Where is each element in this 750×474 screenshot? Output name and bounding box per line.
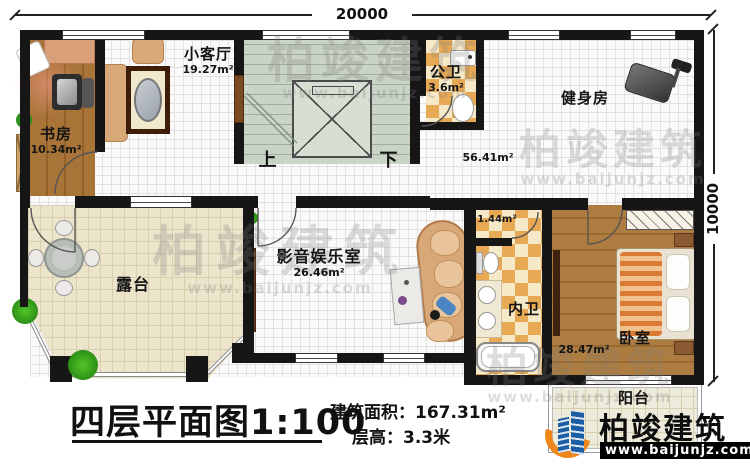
bed-pillow <box>666 254 690 290</box>
wash-basin <box>478 286 496 304</box>
room-area: 1.44m² <box>474 214 520 226</box>
stair-direction: 下 <box>377 150 401 171</box>
wall-segment <box>232 353 295 363</box>
wall-segment <box>145 30 262 40</box>
bedroom-label: 卧室 <box>607 330 663 348</box>
right-dimension-value: 10000 <box>704 174 722 244</box>
built-area-label: 建筑面积： <box>330 403 415 423</box>
room-name: 公卫 <box>418 64 474 82</box>
table-decor <box>404 280 409 285</box>
logo-building-icon <box>571 411 584 455</box>
bedroom-wardrobe <box>626 210 694 230</box>
room-name: 卧室 <box>607 330 663 348</box>
wall-segment <box>676 30 704 40</box>
inner-bath-label: 内卫 <box>499 301 549 319</box>
window <box>295 353 338 363</box>
nightstand <box>674 341 694 355</box>
treadmill-belt <box>623 62 676 105</box>
logo-building-icon <box>558 417 569 453</box>
study-desk <box>44 38 95 64</box>
desk-chair <box>82 78 94 108</box>
wash-basin <box>478 312 496 330</box>
room-area: 56.41m² <box>453 152 523 165</box>
patio-chair <box>55 220 73 236</box>
wall-segment <box>20 196 30 208</box>
window <box>262 30 350 40</box>
patio-chair <box>55 280 73 296</box>
window <box>630 30 676 40</box>
bed-pillow <box>666 296 690 332</box>
wall-segment <box>95 40 105 152</box>
wall-segment <box>234 123 244 164</box>
hall-cabinet <box>234 75 244 123</box>
room-area: 19.27m² <box>168 64 248 77</box>
room-area: 28.47m² <box>558 344 610 357</box>
media-room-label: 影音娱乐室 26.46m² <box>263 248 375 280</box>
patio-chair <box>28 249 44 267</box>
window <box>383 353 425 363</box>
nightstand <box>674 233 694 247</box>
wall-segment <box>622 198 704 210</box>
coffee-table <box>390 267 425 325</box>
monitor-screen <box>57 79 77 105</box>
wall-segment <box>75 196 130 208</box>
built-area-value: 167.31m² <box>415 403 506 423</box>
toilet <box>452 94 474 122</box>
bed-blanket <box>620 252 662 336</box>
inner-bath-area-label: 1.44m² <box>474 214 520 226</box>
room-name: 小客厅 <box>168 46 248 64</box>
gym-area-label: 56.41m² <box>453 152 523 165</box>
sofa <box>101 64 128 142</box>
window <box>130 196 192 208</box>
armchair <box>132 38 164 64</box>
table-flowers <box>398 296 407 305</box>
window <box>585 375 672 385</box>
floor-height-label: 层高： <box>352 428 403 448</box>
room-name: 内卫 <box>499 301 549 319</box>
floor-height-value: 3.3米 <box>403 428 450 448</box>
sofa-cushion <box>434 260 464 288</box>
wall-segment <box>20 30 62 40</box>
bedroom-area-label: 28.47m² <box>558 344 610 357</box>
wall-segment <box>20 40 30 205</box>
bathtub-basin <box>481 346 535 368</box>
terrace-label: 露台 <box>103 276 163 295</box>
gym-label: 健身房 <box>545 90 625 108</box>
treadmill-console <box>671 58 693 74</box>
room-name: 影音娱乐室 <box>263 248 375 267</box>
room-area: 3.6m² <box>418 82 474 95</box>
inner-toilet <box>483 252 499 274</box>
room-name: 书房 <box>20 126 92 144</box>
stair-landing <box>312 86 354 95</box>
stair-void <box>292 80 372 158</box>
terrace-pillar <box>186 356 208 382</box>
bedroom-tv-stand <box>553 250 560 336</box>
public-bath-label: 公卫 3.6m² <box>418 64 474 95</box>
person-head <box>430 310 440 320</box>
wall-segment <box>430 198 588 210</box>
window <box>508 30 560 40</box>
room-name: 露台 <box>103 276 163 295</box>
terrace-plant <box>68 350 98 380</box>
plan-title: 四层平面图1:100 <box>70 394 366 445</box>
wall-segment <box>425 353 474 363</box>
floor-plan: 柏竣建筑 www.baijunjz.com 柏竣建筑 www.baijunjz.… <box>0 0 750 474</box>
wall-segment <box>672 375 704 385</box>
wall-segment <box>560 30 630 40</box>
sofa-cushion <box>430 230 460 256</box>
wall-segment <box>476 40 484 130</box>
wall-segment <box>542 205 552 385</box>
wall-segment <box>338 353 383 363</box>
wall-segment <box>464 375 585 385</box>
small-living-label: 小客厅 19.27m² <box>168 46 248 77</box>
sink-faucet <box>468 55 472 59</box>
wall-segment <box>472 238 512 246</box>
inner-toilet-tank <box>476 252 483 274</box>
study-label: 书房 10.34m² <box>20 126 92 157</box>
stairs-up-label: 上 <box>256 150 280 171</box>
logo-website: www.baijunjz.com <box>600 442 750 459</box>
table-mirror <box>134 78 162 122</box>
room-area: 10.34m² <box>20 144 92 157</box>
wall-segment <box>243 205 254 353</box>
room-area: 26.46m² <box>263 267 375 280</box>
top-dimension-value: 20000 <box>312 5 412 23</box>
built-area-row: 建筑面积：167.31m² <box>330 398 506 423</box>
wall-segment <box>20 205 28 307</box>
patio-chair <box>84 249 100 267</box>
window <box>62 30 145 40</box>
floor-height-row: 层高：3.3米 <box>352 423 450 448</box>
wall-segment <box>694 40 704 385</box>
sofa-cushion <box>426 320 454 342</box>
stairs-down-label: 下 <box>377 150 401 171</box>
stair-direction: 上 <box>256 150 280 171</box>
patio-table <box>44 238 84 278</box>
wall-segment <box>350 30 508 40</box>
company-logo: 柏竣建筑 www.baijunjz.com <box>545 404 750 468</box>
wall-segment <box>296 196 430 208</box>
title-underline <box>72 440 322 443</box>
room-name: 健身房 <box>545 90 625 108</box>
wall-segment <box>418 122 482 130</box>
